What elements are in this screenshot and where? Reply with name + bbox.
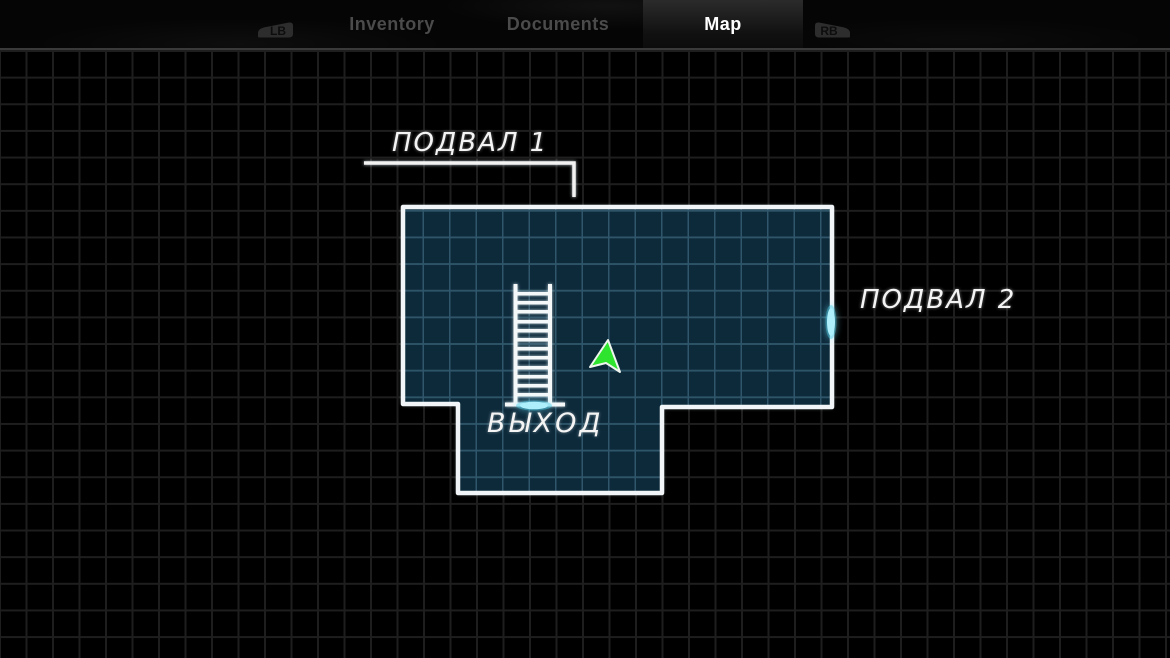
label-basement-1: ПОДВАЛ 1 (392, 128, 548, 158)
game-screen: LB Inventory Documents Map RB (0, 0, 1170, 658)
svg-text:LB: LB (270, 24, 286, 38)
rb-button-icon: RB (812, 20, 852, 40)
lb-button-icon: LB (256, 20, 294, 40)
rb-shoulder-button[interactable]: RB (812, 20, 852, 40)
lb-shoulder-button[interactable]: LB (256, 20, 294, 40)
svg-text:RB: RB (820, 24, 838, 38)
top-tab-bar: LB Inventory Documents Map RB (0, 0, 1170, 48)
label-exit: ВЫХОД (487, 408, 603, 439)
tab-documents[interactable]: Documents (488, 0, 628, 48)
tab-map[interactable]: Map (643, 0, 803, 48)
map-viewport[interactable] (0, 50, 1170, 658)
tab-inventory[interactable]: Inventory (322, 0, 462, 48)
label-basement-2: ПОДВАЛ 2 (860, 285, 1016, 315)
